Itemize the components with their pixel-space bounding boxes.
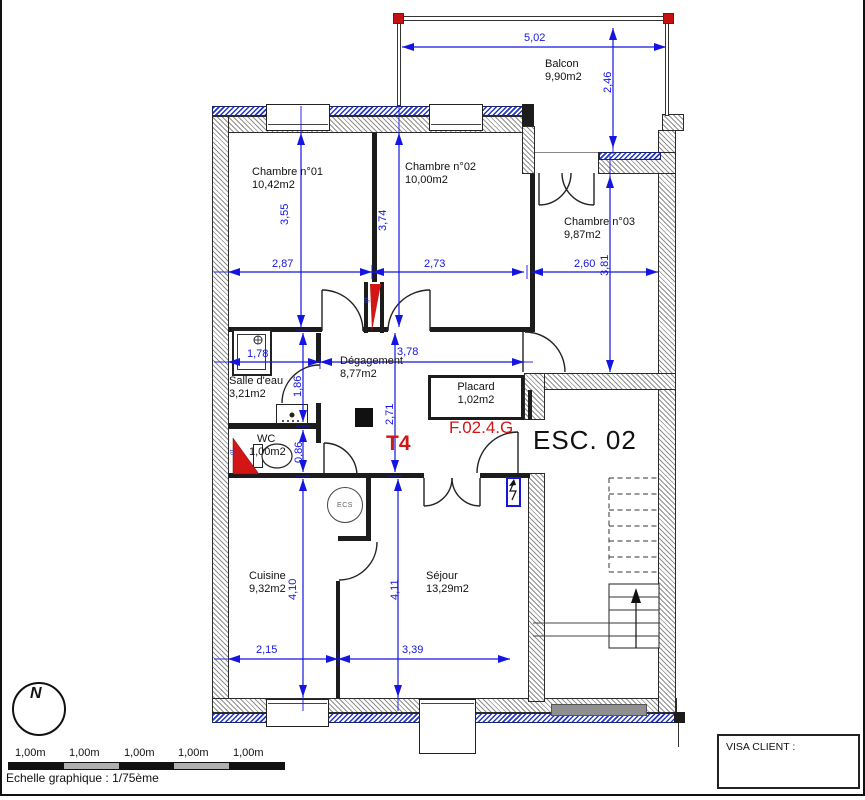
north-letter: N	[30, 685, 42, 703]
wall-cuisine-bottom	[336, 581, 340, 698]
window-ch02-sill	[431, 124, 481, 125]
wall-cuisine-top	[366, 478, 371, 540]
dim-cuisine-w: 2,15	[256, 645, 277, 656]
scale-segment	[119, 763, 174, 769]
unit-type-label: T4	[386, 433, 411, 455]
dim-balcony-depth: 2,46	[603, 72, 614, 93]
closet-placard: Placard 1,02m2	[428, 375, 524, 420]
scale-label-3: 1,00m	[124, 747, 155, 759]
room-name: Séjour	[426, 570, 469, 583]
room-area: 9,90m2	[545, 71, 582, 84]
wall-sde-right-2	[316, 403, 321, 423]
room-label-ch01: Chambre n°01 10,42m2	[252, 166, 323, 192]
room-area: 3,21m2	[229, 388, 283, 401]
wall-top	[212, 116, 534, 133]
visa-client-label: VISA CLIENT :	[726, 741, 795, 753]
room-label-sde: Salle d'eau 3,21m2	[229, 375, 283, 401]
room-area: 9,32m2	[249, 583, 286, 596]
room-area: 8,77m2	[340, 368, 403, 381]
scale-label-4: 1,00m	[178, 747, 209, 759]
stair-treads	[533, 478, 659, 648]
wall-stub-corner	[522, 104, 534, 126]
wall-ch01-ch02	[372, 133, 377, 282]
visa-client-box: VISA CLIENT :	[717, 734, 860, 789]
dim-deg-w: 3,78	[397, 347, 418, 358]
column	[355, 408, 373, 427]
dimension-extensions	[214, 106, 613, 711]
dim-ch02-h: 3,74	[378, 210, 389, 231]
dim-ch02-w: 2,73	[424, 259, 445, 270]
room-label-wc: WC	[257, 433, 275, 446]
floorplan-sheet: ECS	[0, 0, 865, 800]
scale-segment	[9, 763, 64, 769]
dim-sde-h: 1,86	[293, 376, 304, 397]
sink	[276, 404, 308, 424]
wall-chambres-south-3	[430, 327, 531, 332]
dim-sde-w: 1,78	[247, 349, 268, 360]
dim-ch01-h: 3,55	[280, 204, 291, 225]
balcony-rail-right	[665, 16, 669, 116]
wall-left	[212, 116, 229, 723]
balcony-post-left	[393, 13, 404, 24]
duct-frame-right	[380, 282, 384, 333]
staircase-label: ESC. 02	[533, 426, 637, 454]
dim-ch03-w: 2,60	[574, 259, 595, 270]
dim-sejour-h: 4,11	[390, 579, 401, 600]
corner-block-se	[674, 712, 685, 723]
balcony-rail-left	[397, 16, 401, 106]
balcony-door-opening	[535, 152, 598, 174]
window-ch01	[266, 104, 330, 131]
room-name: Chambre n°03	[564, 216, 635, 229]
duct-frame-left	[364, 282, 368, 333]
room-name: Dégagement	[340, 355, 403, 368]
balcony-post-right	[663, 13, 674, 24]
dim-cuisine-h: 4,10	[288, 579, 299, 600]
wall-ch03-left	[530, 174, 535, 332]
scale-label-1: 1,00m	[15, 747, 46, 759]
room-area: 9,87m2	[564, 229, 635, 242]
scale-bar	[8, 762, 285, 770]
scale-label-2: 1,00m	[69, 747, 100, 759]
room-label-sejour: Séjour 13,29m2	[426, 570, 469, 596]
sheet-border-left	[0, 0, 2, 796]
room-area: 13,29m2	[426, 583, 469, 596]
room-area-wc: 1,00m2	[249, 446, 286, 459]
wall-stair-left-lower	[528, 473, 545, 702]
scale-segment	[64, 763, 119, 769]
wall-right	[658, 130, 676, 713]
scale-label-5: 1,00m	[233, 747, 264, 759]
wall-stair-top	[531, 373, 676, 390]
scale-segment	[229, 763, 284, 769]
room-area: 10,00m2	[405, 174, 476, 187]
room-label-cuisine: Cuisine 9,32m2	[249, 570, 286, 596]
wall-wc-right	[316, 429, 321, 443]
duct-label-wc: gt	[229, 450, 236, 455]
wall-ch03-insulation	[599, 152, 661, 160]
scale-segment	[174, 763, 229, 769]
room-name: Salle d'eau	[229, 375, 283, 388]
room-name: Balcon	[545, 58, 582, 71]
scale-caption: Echelle graphique : 1/75ème	[6, 771, 159, 785]
water-heater: ECS	[327, 487, 363, 523]
french-window-sejour-sill	[421, 703, 474, 704]
room-name: Placard	[431, 381, 521, 394]
dim-balcony-width: 5,02	[524, 33, 545, 44]
wall-cuisine-jog	[338, 536, 371, 541]
electric-panel	[506, 477, 521, 507]
room-label-ch02: Chambre n°02 10,00m2	[405, 161, 476, 187]
wall-deg-sejour-1	[228, 473, 424, 478]
wall-deg-sejour-2	[480, 473, 530, 478]
dim-wc-h: 0,86	[294, 442, 305, 463]
dim-ch01-w: 2,87	[272, 259, 293, 270]
wall-sde-right-1	[316, 333, 321, 363]
duct-label-gaine: gt	[363, 298, 370, 303]
wall-pier-balcony	[662, 114, 684, 131]
dim-sejour-w: 3,39	[402, 645, 423, 656]
stair-up-arrow	[631, 588, 641, 648]
unit-ref-label: F.02.4.G	[449, 419, 513, 437]
window-cuisine-sill	[268, 703, 327, 704]
room-name: Chambre n°01	[252, 166, 323, 179]
corner-tick-se	[678, 723, 679, 747]
french-window-sejour	[419, 699, 476, 754]
stair-entry-step	[551, 704, 647, 716]
window-ch02	[429, 104, 483, 131]
dim-ch03-h: 3,81	[600, 255, 611, 276]
room-area: 1,02m2	[431, 394, 521, 407]
room-name: Chambre n°02	[405, 161, 476, 174]
window-ch01-sill	[268, 124, 328, 125]
wall-stair-left-edge	[528, 390, 532, 420]
room-label-ch03: Chambre n°03 9,87m2	[564, 216, 635, 242]
wall-stub-ch02	[522, 126, 535, 174]
wall-top-insulation	[212, 106, 534, 116]
room-name: Cuisine	[249, 570, 286, 583]
balcony-rail-top	[397, 16, 670, 21]
dim-deg-h: 2,71	[385, 404, 396, 425]
wall-chambres-south-2	[363, 327, 388, 332]
room-label-balcon: Balcon 9,90m2	[545, 58, 582, 84]
sheet-border-bottom	[0, 794, 865, 796]
room-label-degagement: Dégagement 8,77m2	[340, 355, 403, 381]
room-area: 10,42m2	[252, 179, 323, 192]
water-heater-label: ECS	[337, 502, 353, 509]
